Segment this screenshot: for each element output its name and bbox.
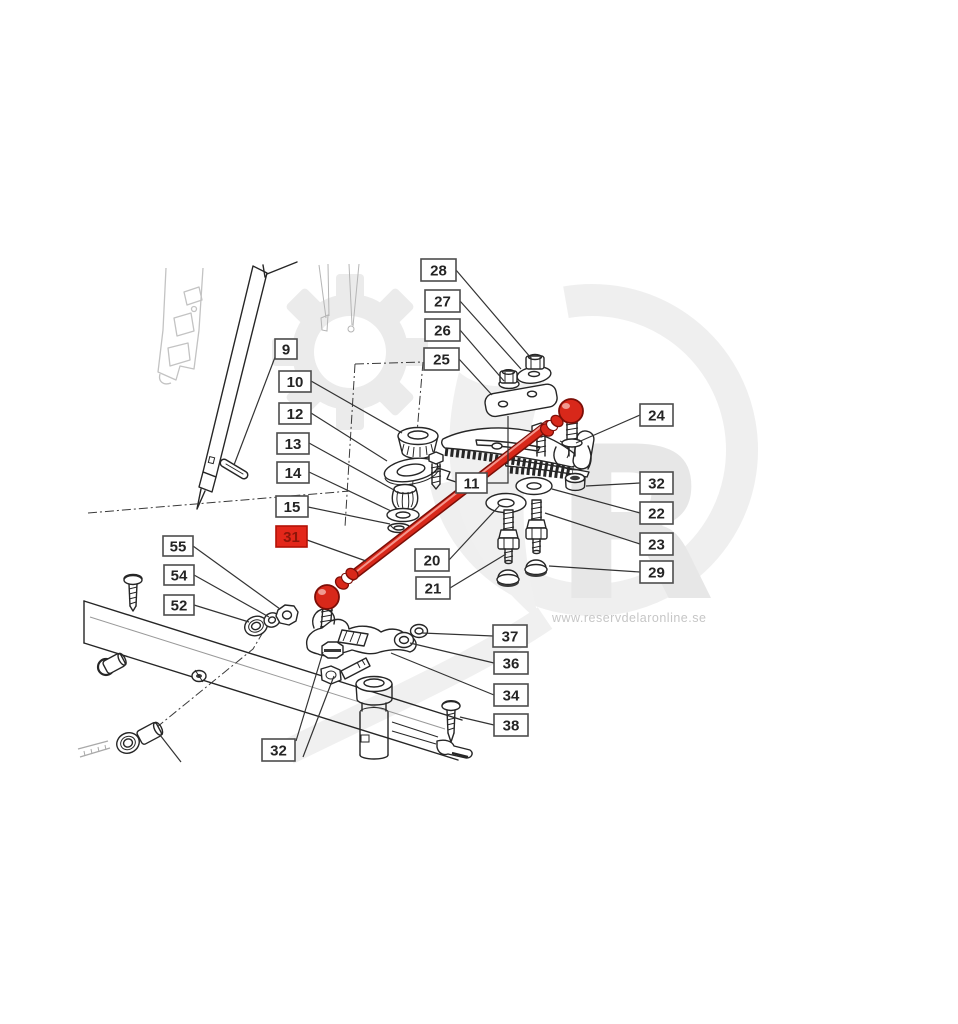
parts-diagram-page: R www.reservdelaronline.se bbox=[0, 0, 958, 1024]
callout-13-number: 13 bbox=[285, 436, 302, 453]
lower-ball-joint bbox=[315, 585, 339, 609]
callout-37[interactable]: 37 bbox=[422, 625, 527, 647]
callout-24-number: 24 bbox=[648, 408, 665, 425]
callout-27-number: 27 bbox=[434, 294, 451, 311]
barrel-bushing bbox=[392, 485, 417, 511]
callout-28-leader-line bbox=[456, 270, 531, 358]
callout-31-number: 31 bbox=[283, 529, 300, 546]
callout-32-bottom-number: 32 bbox=[270, 743, 287, 760]
nut-28 bbox=[526, 355, 544, 370]
bolt-38 bbox=[442, 701, 460, 742]
callout-37-number: 37 bbox=[502, 629, 519, 646]
callout-52-leader-line bbox=[194, 605, 249, 622]
washer-14 bbox=[387, 509, 419, 522]
callout-32-right-number: 32 bbox=[648, 476, 665, 493]
callout-52-number: 52 bbox=[171, 598, 188, 615]
callout-28-number: 28 bbox=[430, 263, 447, 280]
callout-55-number: 55 bbox=[170, 539, 187, 556]
callout-31-leader-line bbox=[307, 540, 366, 561]
hex-nut-32 bbox=[322, 642, 343, 658]
ring-37 bbox=[411, 625, 428, 638]
bolt-left bbox=[124, 575, 142, 612]
callout-26-number: 26 bbox=[434, 323, 451, 340]
callout-12-number: 12 bbox=[287, 406, 304, 423]
callout-29-number: 29 bbox=[648, 565, 665, 582]
cap-nut-29 bbox=[525, 560, 547, 577]
cap-nut-29b bbox=[497, 570, 519, 587]
callout-15-leader-line bbox=[308, 507, 390, 524]
callout-54-number: 54 bbox=[171, 568, 188, 585]
callout-11-number: 11 bbox=[464, 476, 480, 493]
bushing-36 bbox=[395, 633, 414, 648]
callout-14-leader-line bbox=[309, 472, 391, 511]
callout-15[interactable]: 15 bbox=[276, 496, 390, 524]
callout-21-number: 21 bbox=[425, 581, 442, 598]
watermark-url-text: www.reservdelaronline.se bbox=[551, 611, 706, 625]
callout-22-number: 22 bbox=[648, 506, 665, 523]
shoulder-bolt-23 bbox=[526, 500, 547, 554]
callout-9-number: 9 bbox=[282, 342, 290, 359]
exploded-parts-diagram: R www.reservdelaronline.se bbox=[0, 0, 958, 1024]
upper-ball-joint bbox=[559, 399, 583, 423]
faint-dashboard-panel bbox=[158, 268, 203, 384]
callout-10-number: 10 bbox=[287, 374, 304, 391]
bottom-left-parts bbox=[78, 720, 181, 762]
callout-55-leader-line bbox=[193, 546, 280, 609]
callout-26-leader-line bbox=[460, 330, 504, 381]
callout-54-leader-line bbox=[194, 575, 269, 617]
callout-31[interactable]: 31 bbox=[276, 526, 366, 561]
callout-38[interactable]: 38 bbox=[460, 714, 528, 736]
callout-34-number: 34 bbox=[503, 688, 520, 705]
callout-13-leader-line bbox=[309, 443, 394, 490]
callout-20-number: 20 bbox=[424, 553, 441, 570]
callout-37-leader-line bbox=[422, 633, 493, 636]
callout-15-number: 15 bbox=[284, 499, 301, 516]
callout-23-number: 23 bbox=[648, 537, 665, 554]
callout-14-number: 14 bbox=[285, 465, 302, 482]
washer-22 bbox=[516, 478, 552, 495]
callout-38-number: 38 bbox=[503, 718, 520, 735]
callout-38-leader-line bbox=[460, 717, 494, 725]
callout-25-number: 25 bbox=[433, 352, 450, 369]
callout-36-number: 36 bbox=[503, 656, 520, 673]
